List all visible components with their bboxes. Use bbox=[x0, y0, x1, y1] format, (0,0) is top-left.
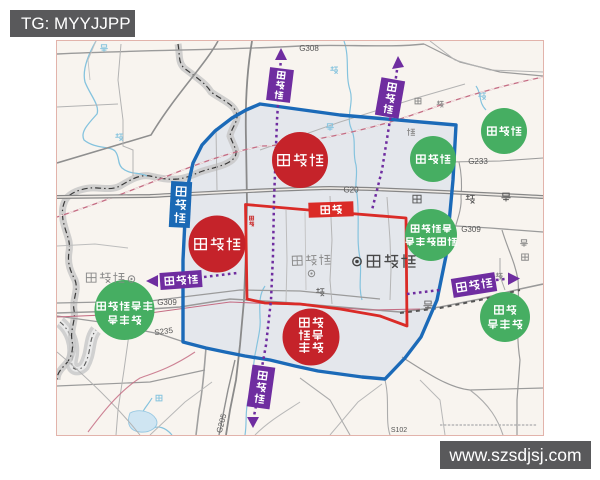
svg-text:G308: G308 bbox=[299, 44, 319, 53]
svg-text:G309: G309 bbox=[461, 225, 481, 234]
svg-text:G233: G233 bbox=[468, 157, 488, 166]
svg-text:G20: G20 bbox=[343, 186, 359, 195]
svg-text:S102: S102 bbox=[391, 427, 407, 434]
svg-text:G309: G309 bbox=[157, 298, 177, 307]
